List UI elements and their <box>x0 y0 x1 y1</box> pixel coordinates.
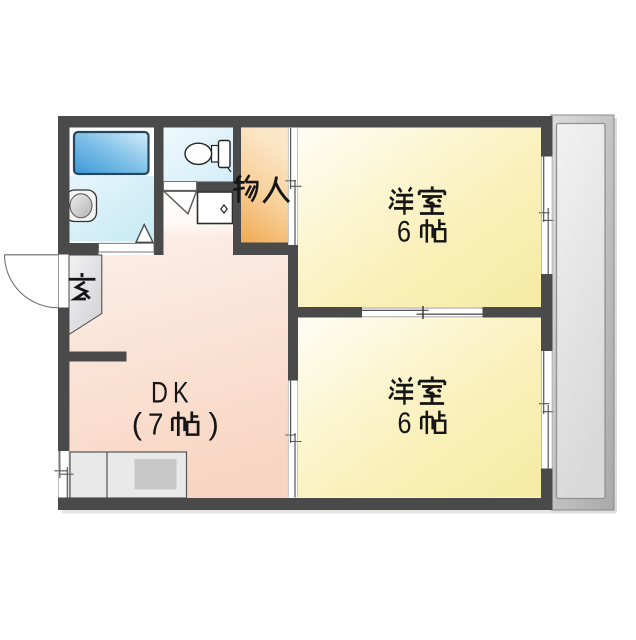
svg-text:6: 6 <box>397 215 411 248</box>
svg-text:): ) <box>209 406 219 441</box>
svg-text:6: 6 <box>398 407 412 440</box>
svg-text:7: 7 <box>148 408 164 442</box>
svg-text:DK: DK <box>151 376 194 409</box>
svg-text:(: ( <box>132 406 143 441</box>
